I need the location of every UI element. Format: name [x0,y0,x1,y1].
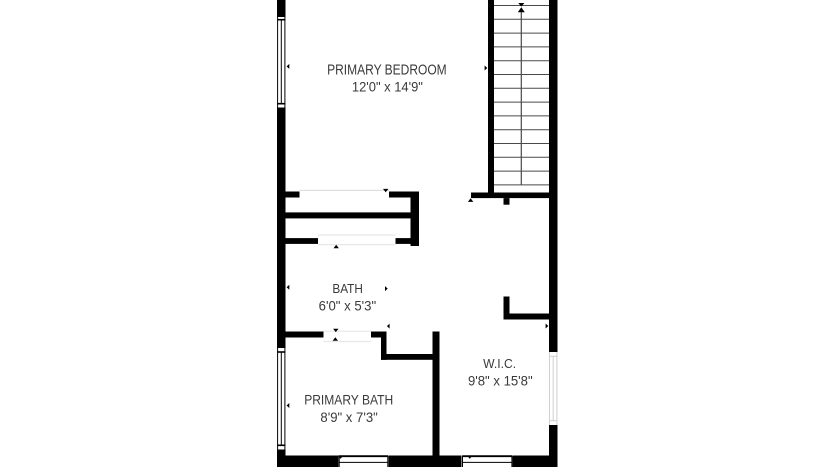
svg-text:6'0" x 5'3": 6'0" x 5'3" [319,299,377,314]
svg-text:PRIMARY BEDROOM: PRIMARY BEDROOM [327,62,447,79]
svg-text:8'9" x 7'3": 8'9" x 7'3" [320,410,378,425]
svg-text:9'8" x 15'8": 9'8" x 15'8" [468,374,533,389]
svg-text:12'0" x 14'9": 12'0" x 14'9" [352,79,423,94]
svg-text:BATH: BATH [332,281,363,296]
svg-text:W.I.C.: W.I.C. [483,356,516,371]
svg-text:PRIMARY BATH: PRIMARY BATH [304,392,393,407]
